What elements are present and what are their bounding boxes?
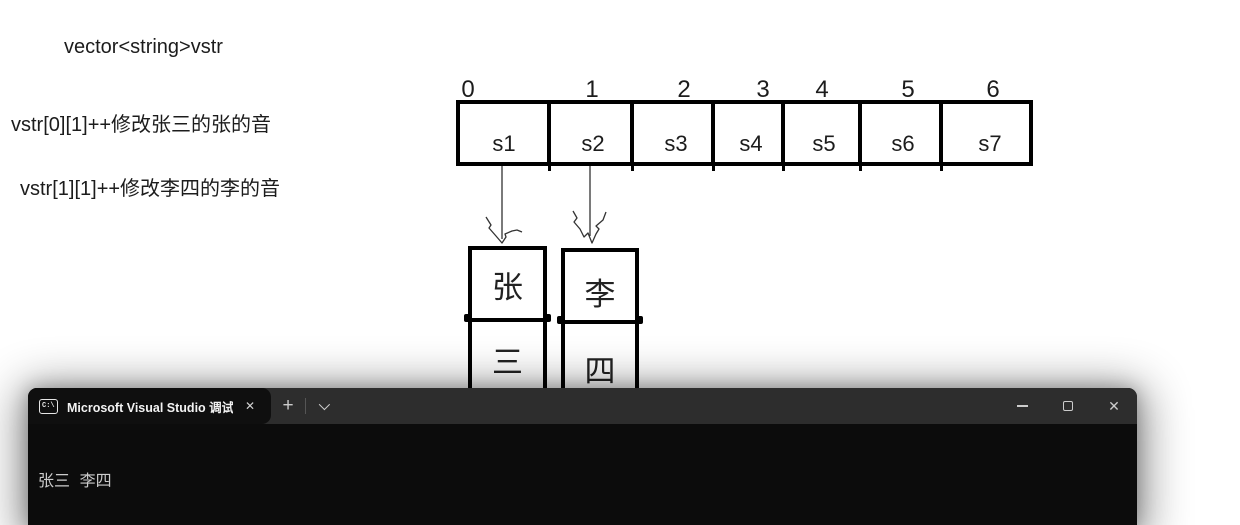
- terminal-window: C:\ Microsoft Visual Studio 调试控制台 ✕ + ✕ …: [28, 388, 1137, 525]
- terminal-line: 张三 李四: [38, 471, 1137, 490]
- array-cell-s5: s5: [812, 131, 835, 157]
- array-cell-s4: s4: [739, 131, 762, 157]
- console-icon: C:\: [39, 399, 58, 414]
- vector-array-diagram: s1 s2 s3 s4 s5 s6 s7: [456, 100, 1033, 166]
- cell-divider: [630, 103, 634, 163]
- vector-declaration-note: vector<string>vstr: [64, 36, 223, 59]
- cell-divider: [858, 103, 862, 163]
- modify-note-2: vstr[1][1]++修改李四的李的音: [20, 172, 280, 201]
- minimize-button[interactable]: [999, 388, 1045, 424]
- minimize-icon: [1017, 405, 1028, 407]
- array-cell-s7: s7: [978, 131, 1001, 157]
- tick-mark: [712, 163, 715, 171]
- tick-mark: [631, 163, 634, 171]
- terminal-tab[interactable]: C:\ Microsoft Visual Studio 调试控制台 ✕: [28, 388, 271, 424]
- terminal-output[interactable]: 张三 李四 掌三 里四 D:\git\test\vectortest10-30\…: [28, 424, 1137, 525]
- maximize-button[interactable]: [1045, 388, 1091, 424]
- array-cell-s2: s2: [581, 131, 604, 157]
- cell-divider: [547, 103, 551, 163]
- joint-nub: [544, 314, 551, 322]
- tab-dropdown-button[interactable]: [306, 388, 340, 424]
- terminal-titlebar: C:\ Microsoft Visual Studio 调试控制台 ✕ + ✕: [28, 388, 1137, 424]
- cell-divider: [939, 103, 943, 163]
- joint-nub: [636, 316, 643, 324]
- close-button[interactable]: ✕: [1091, 388, 1137, 424]
- string-box-lisi: 李 四: [561, 248, 639, 402]
- array-cell-s3: s3: [664, 131, 687, 157]
- pointer-arrowhead-2: [573, 211, 606, 243]
- char-box-zhang: 张: [468, 246, 547, 322]
- tab-close-icon[interactable]: ✕: [242, 397, 258, 415]
- modify-note-1: vstr[0][1]++修改张三的张的音: [11, 108, 271, 137]
- pointer-arrowhead-1: [486, 217, 522, 243]
- tick-mark: [859, 163, 862, 171]
- string-box-zhangsan: 张 三: [468, 246, 547, 400]
- joint-nub: [464, 314, 471, 322]
- new-tab-button[interactable]: +: [271, 388, 305, 424]
- terminal-tab-title: Microsoft Visual Studio 调试控制台: [67, 397, 233, 416]
- tick-mark: [940, 163, 943, 171]
- cell-divider: [781, 103, 785, 163]
- chevron-down-icon: [319, 399, 330, 410]
- char-box-li: 李: [561, 248, 639, 324]
- titlebar-drag-area: [340, 388, 999, 424]
- maximize-icon: [1063, 401, 1073, 411]
- tick-mark: [548, 163, 551, 171]
- tick-mark: [782, 163, 785, 171]
- joint-nub: [557, 316, 564, 324]
- array-cell-s6: s6: [891, 131, 914, 157]
- cell-divider: [711, 103, 715, 163]
- array-cell-s1: s1: [492, 131, 515, 157]
